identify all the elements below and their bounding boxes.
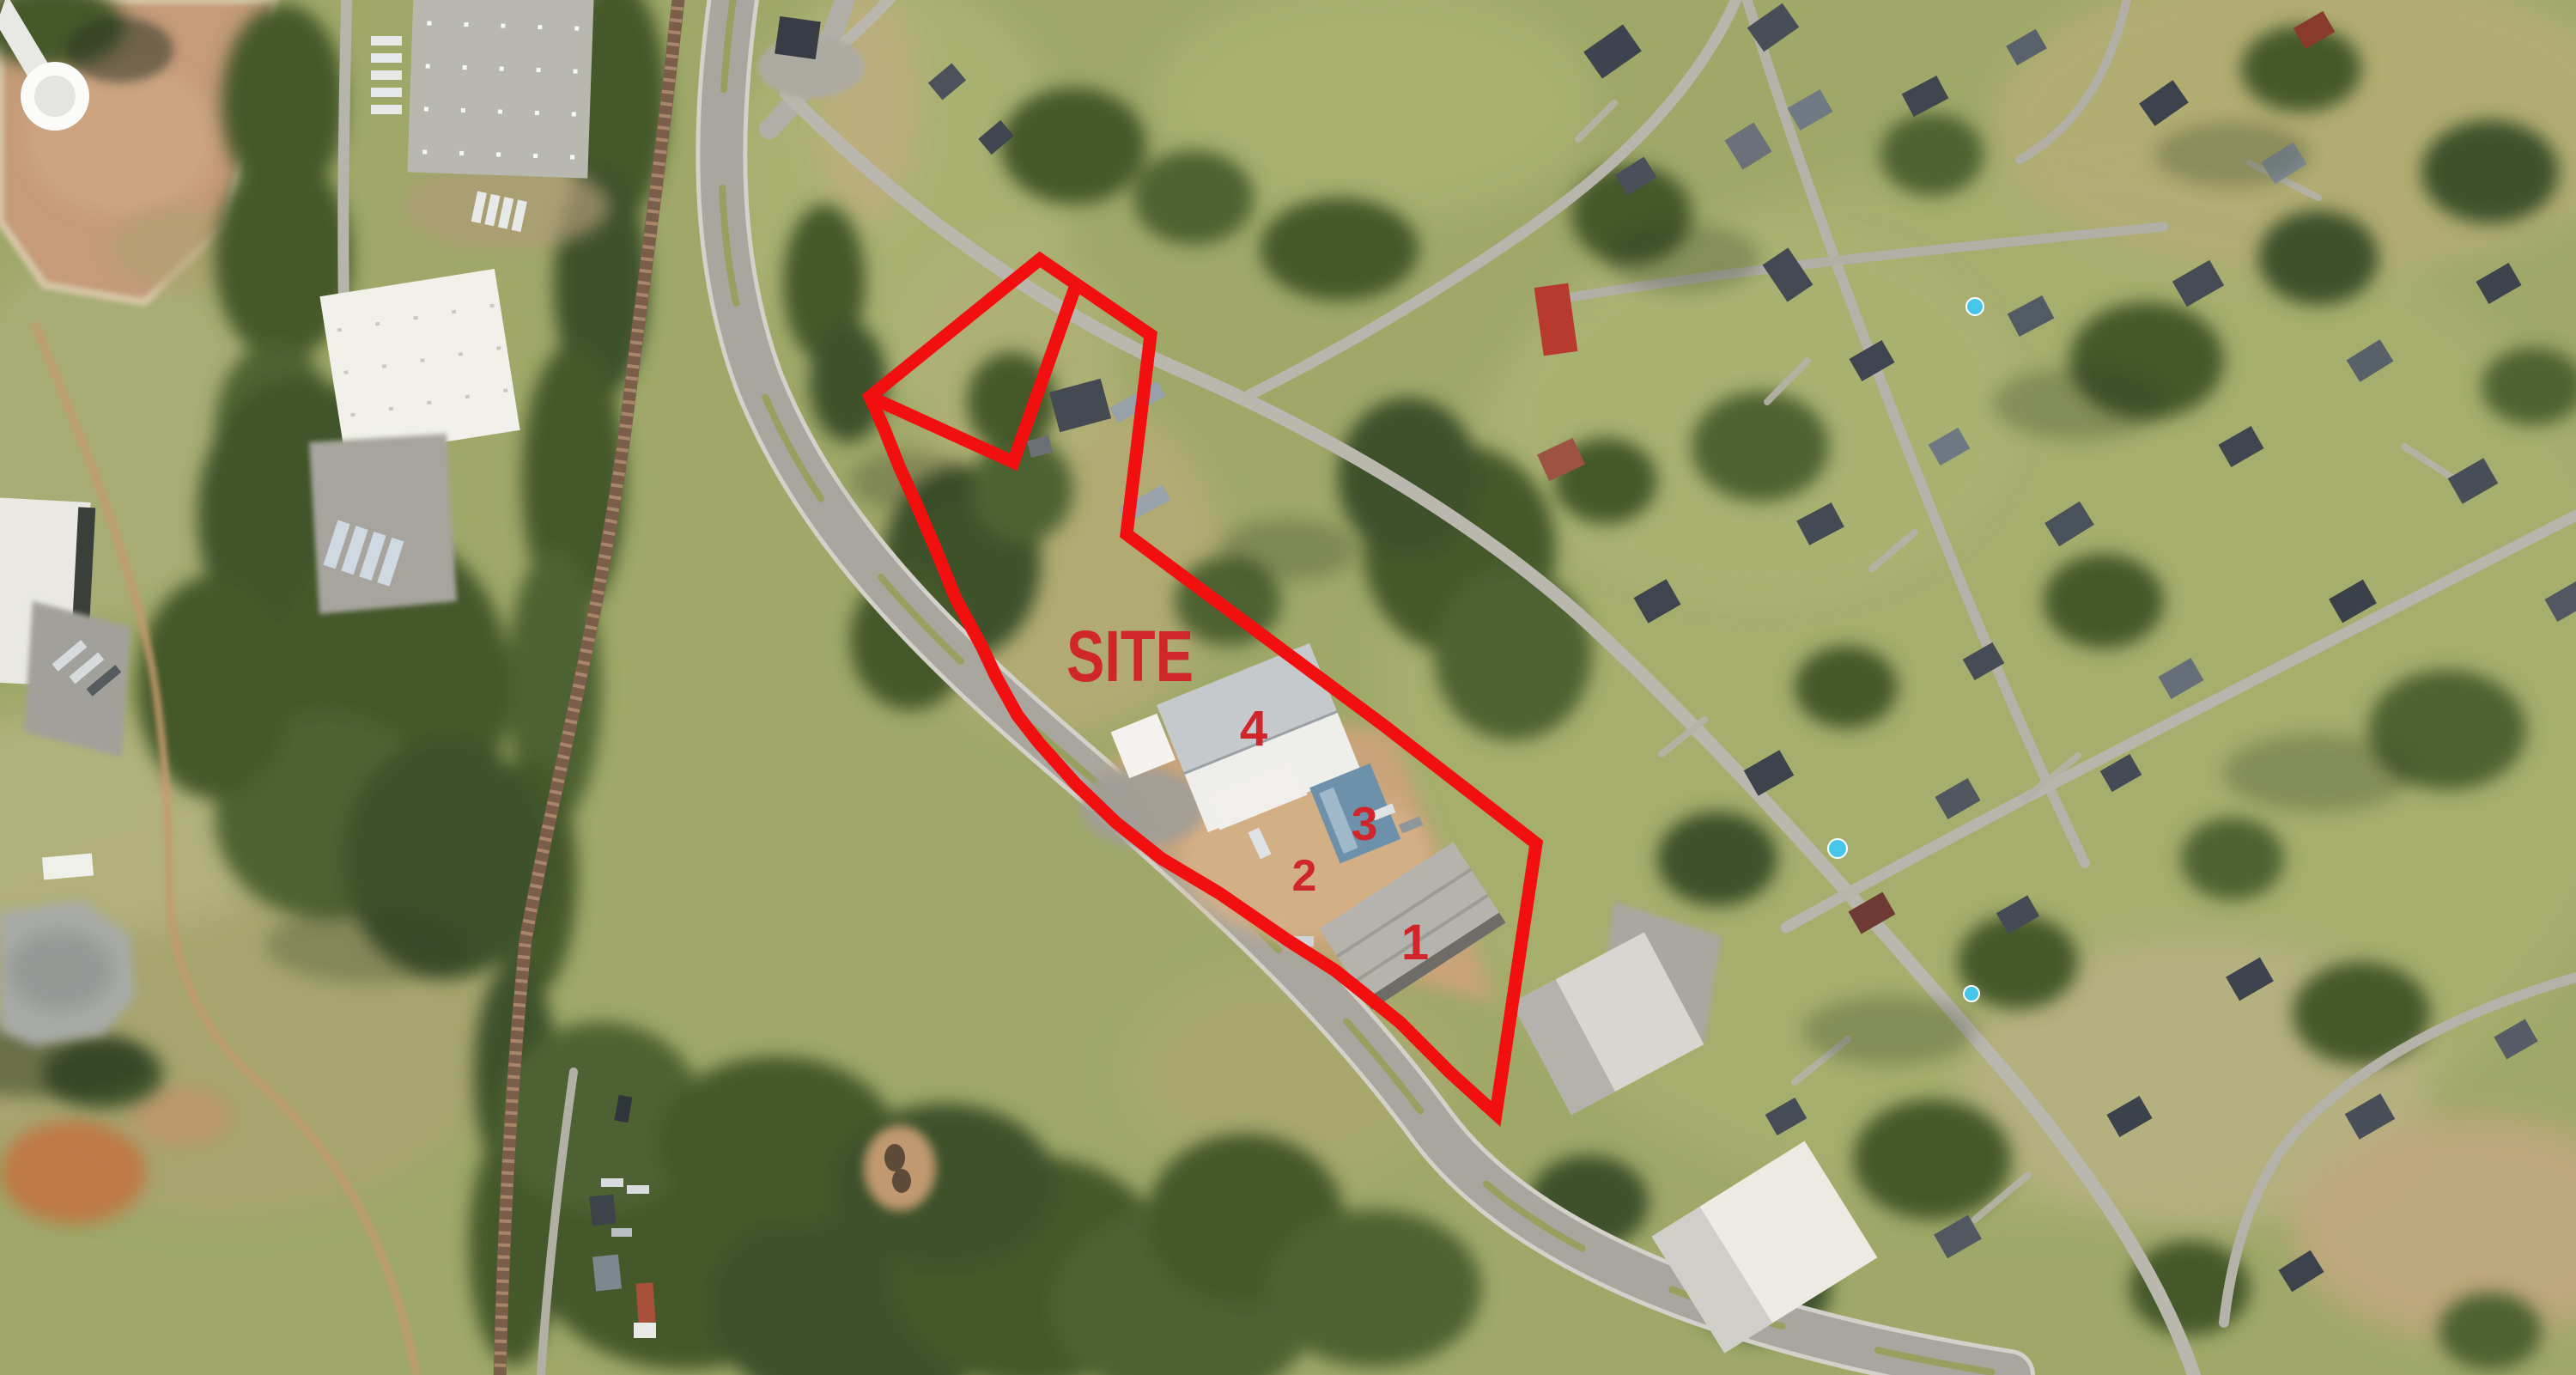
site-marker-2: 2 [1292, 851, 1317, 901]
site-marker-3: 3 [1352, 797, 1378, 850]
aerial-map: SITE 4 3 2 1 [0, 0, 2576, 1375]
site-marker-1: 1 [1401, 915, 1429, 970]
site-marker-4: 4 [1240, 701, 1267, 757]
site-label: SITE [1066, 616, 1194, 697]
warehouse-white [319, 269, 519, 458]
warehouse-gray [407, 0, 593, 179]
eroded-dirt-patch [0, 1121, 146, 1224]
rusty-barn-roof [635, 1282, 655, 1323]
